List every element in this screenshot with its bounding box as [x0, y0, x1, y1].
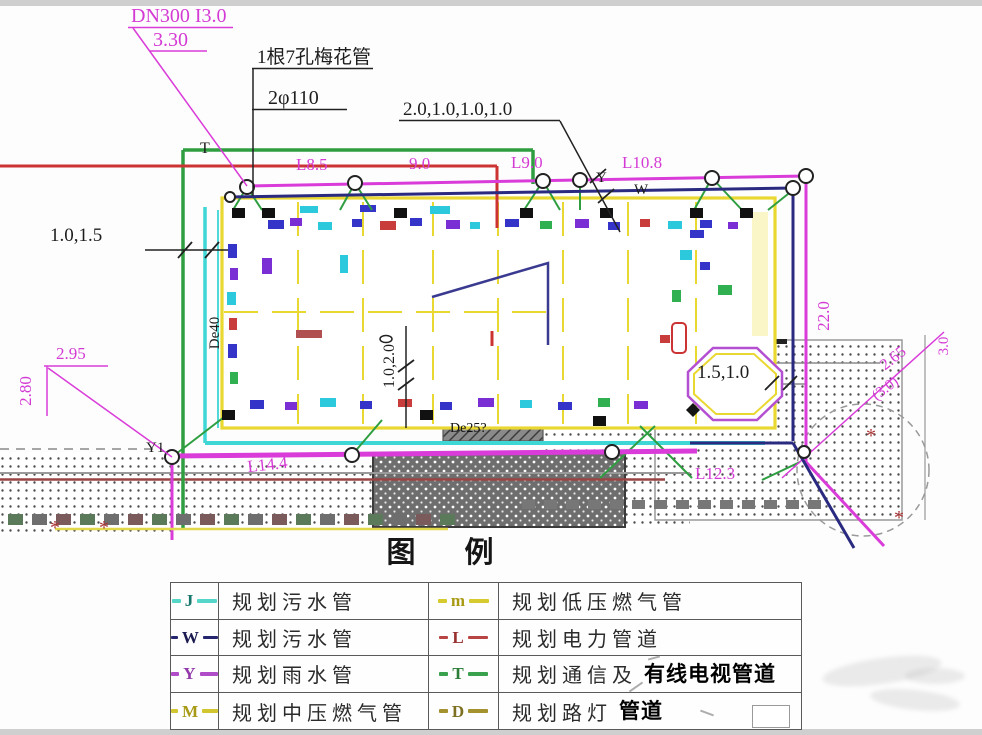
label-dims-left: 1.0,1.5 [50, 225, 102, 246]
building-fixture [296, 330, 322, 338]
building-fixture [352, 219, 362, 227]
legend-title: 图 例 [330, 529, 560, 571]
legend-marker-w: W [171, 620, 219, 657]
parking-stall [152, 514, 167, 525]
legend-label-m-mid: 规划中压燃气管 [219, 693, 429, 730]
building-fixture [430, 206, 450, 214]
parking-stall [32, 514, 47, 525]
building-fixture [598, 398, 610, 407]
parking-stall [654, 500, 667, 509]
building-fixture [285, 402, 297, 410]
parking-stall [676, 500, 689, 509]
building-fixture [380, 221, 396, 230]
building-fixture [575, 219, 589, 228]
svg-text:*: * [894, 507, 904, 529]
parking-stall [786, 500, 799, 509]
building-fixture [700, 220, 712, 228]
site-utility-plan-screenshot: ** ** DN300 I3.0 3.30 1根7孔梅花管 2φ110 2.0,… [0, 0, 982, 735]
svg-text:*: * [99, 517, 109, 539]
label-l220: 22.0 [814, 301, 833, 331]
svg-text:*: * [866, 425, 876, 447]
label-y-marker: Y [596, 170, 607, 186]
existing-building [373, 453, 625, 527]
building-fixture [668, 221, 682, 229]
legend-label-d-bold: 管道 [619, 695, 663, 725]
label-de25: De25? [450, 421, 487, 436]
junction-box [690, 208, 703, 218]
legend-label-j: 规划污水管 [219, 583, 429, 620]
svg-text:*: * [50, 517, 60, 539]
label-dims-top: 2.0,1.0,1.0,1.0 [403, 99, 512, 120]
watermark-smudge [905, 668, 965, 684]
parking-stall [8, 514, 23, 525]
label-280: 2.80 [16, 376, 35, 406]
parking-stall [610, 500, 623, 509]
building-fixture [680, 250, 692, 260]
label-elev: 3.30 [153, 29, 188, 51]
building-fixture [227, 292, 236, 305]
label-dims-r: 1.5,1.0 [697, 362, 749, 383]
legend-label-w: 规划污水管 [219, 620, 429, 657]
junction-box [222, 410, 235, 420]
junction-box [740, 208, 753, 218]
parking-stall [128, 514, 143, 525]
junction-box [262, 208, 275, 218]
parking-stall [392, 514, 407, 525]
parking-stall [344, 514, 359, 525]
legend-marker-j: J [171, 583, 219, 620]
legend-table: J 规划污水管 m 规划低压燃气管 W 规划污水管 L 规划电力管道 Y 规划雨… [170, 582, 802, 730]
building-fixture [228, 344, 237, 358]
label-de40: De40 [207, 317, 223, 350]
parking-stall [272, 514, 287, 525]
parking-stall [296, 514, 311, 525]
building-fixture [640, 219, 650, 227]
revision-box [752, 705, 790, 728]
building-fixture [672, 290, 681, 302]
building-fixture [262, 258, 272, 274]
building-fixture [470, 222, 480, 229]
label-plum-pipe: 1根7孔梅花管 [257, 46, 371, 68]
building-fixture [440, 402, 452, 410]
junction-box [420, 410, 433, 420]
label-dn300: DN300 I3.0 [131, 5, 227, 27]
parking-stall [588, 500, 601, 509]
building-fixture [229, 318, 237, 330]
parking-stall [742, 500, 755, 509]
label-dims-v: 1.0,2.0 [381, 344, 398, 388]
building-fixture [558, 402, 572, 410]
building-fixture [634, 401, 648, 409]
parking-stall [368, 514, 383, 525]
label-90: 9.0 [409, 154, 430, 173]
building-fixture [318, 222, 332, 230]
building-fixture [290, 218, 302, 226]
label-t-marker: T [200, 140, 210, 157]
building-fixture [520, 400, 532, 408]
building-fixture [478, 398, 494, 407]
building-fixture [540, 221, 552, 229]
building-fixture [360, 401, 372, 409]
building-fixture [230, 268, 238, 280]
building-fixture [718, 285, 732, 295]
label-phi: 2φ110 [268, 87, 319, 109]
parking-stall [200, 514, 215, 525]
legend-marker-m-low: m [429, 583, 499, 620]
legend-marker-l: L [429, 620, 499, 657]
label-y1: Y1 [146, 440, 164, 456]
building-fixture [505, 219, 519, 227]
building-fixture [300, 206, 318, 213]
junction-box [520, 208, 533, 218]
building-fixture [410, 218, 422, 226]
parking-stall [416, 514, 431, 525]
parking-stall [808, 500, 821, 509]
junction-box [232, 208, 245, 218]
parking-stall [566, 500, 579, 509]
parking-stall [320, 514, 335, 525]
parking-stall [80, 514, 95, 525]
legend-marker-t: T [429, 656, 499, 693]
building-fixture [700, 262, 710, 270]
building-fixture [360, 205, 376, 212]
building-fixture [228, 244, 237, 258]
legend-label-y: 规划雨水管 [219, 656, 429, 693]
building-fixture [446, 220, 460, 229]
building-fixture [320, 398, 336, 407]
legend-marker-d: D [429, 693, 499, 730]
legend-label-t-bold: 有线电视管道 [644, 658, 776, 688]
parking-stall [248, 514, 263, 525]
label-30b: 3.0 [936, 337, 952, 356]
building-fixture [250, 400, 264, 409]
label-l90: L9.0 [511, 153, 543, 172]
parking-stall [720, 500, 733, 509]
label-w-marker: W [634, 182, 649, 198]
parking-stall [632, 500, 645, 509]
building-fixture [230, 372, 238, 384]
junction-box [593, 416, 606, 426]
parking-stall [698, 500, 711, 509]
parking-stall [176, 514, 191, 525]
building-fixture [268, 220, 284, 229]
label-295: 2.95 [56, 344, 86, 363]
parking-stall [440, 514, 455, 525]
legend-marker-m-mid: M [171, 693, 219, 730]
label-l123: L12.3 [695, 464, 735, 483]
legend-marker-y: Y [171, 656, 219, 693]
legend-label-l: 规划电力管道 [499, 620, 801, 657]
parking-stall [764, 500, 777, 509]
parking-stall [224, 514, 239, 525]
building-fixture [728, 222, 738, 229]
building-fixture [660, 335, 670, 343]
label-l85: L8.5 [296, 155, 328, 174]
parking-stall [522, 500, 535, 509]
legend-label-t: 规划通信及有线电视管道 [499, 656, 801, 693]
junction-box [394, 208, 407, 218]
building-fixture [398, 399, 412, 407]
building-fixture [690, 230, 704, 238]
bay-window-outline [688, 348, 782, 420]
parking-stall [544, 500, 557, 509]
building-fixture [340, 255, 348, 273]
label-l108: L10.8 [622, 153, 662, 172]
legend-label-m-low: 规划低压燃气管 [499, 583, 801, 620]
